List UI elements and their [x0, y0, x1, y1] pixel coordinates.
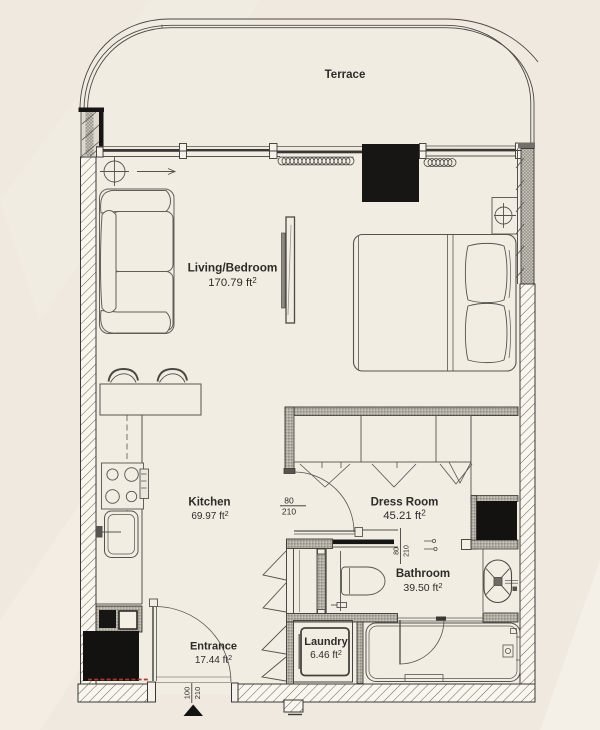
- svg-text:80: 80: [394, 547, 401, 555]
- svg-text:210: 210: [404, 545, 411, 557]
- svg-text:170.79 ft2: 170.79 ft2: [208, 276, 257, 289]
- svg-text:Living/Bedroom: Living/Bedroom: [188, 261, 278, 275]
- svg-text:Laundry: Laundry: [304, 636, 348, 648]
- svg-text:Entrance: Entrance: [190, 641, 237, 653]
- svg-text:69.97 ft2: 69.97 ft2: [191, 509, 228, 522]
- svg-text:80: 80: [284, 496, 294, 506]
- svg-text:39.50 ft2: 39.50 ft2: [403, 581, 442, 594]
- svg-text:Kitchen: Kitchen: [188, 497, 230, 509]
- svg-text:100: 100: [183, 687, 192, 700]
- svg-text:Bathroom: Bathroom: [396, 568, 450, 580]
- svg-text:45.21 ft2: 45.21 ft2: [383, 509, 426, 522]
- svg-text:6.46 ft2: 6.46 ft2: [310, 648, 342, 661]
- svg-text:17.44 ft2: 17.44 ft2: [195, 653, 232, 666]
- svg-text:210: 210: [282, 507, 296, 517]
- svg-text:Terrace: Terrace: [325, 69, 366, 81]
- svg-text:210: 210: [193, 687, 202, 700]
- svg-text:Dress Room: Dress Room: [371, 497, 439, 509]
